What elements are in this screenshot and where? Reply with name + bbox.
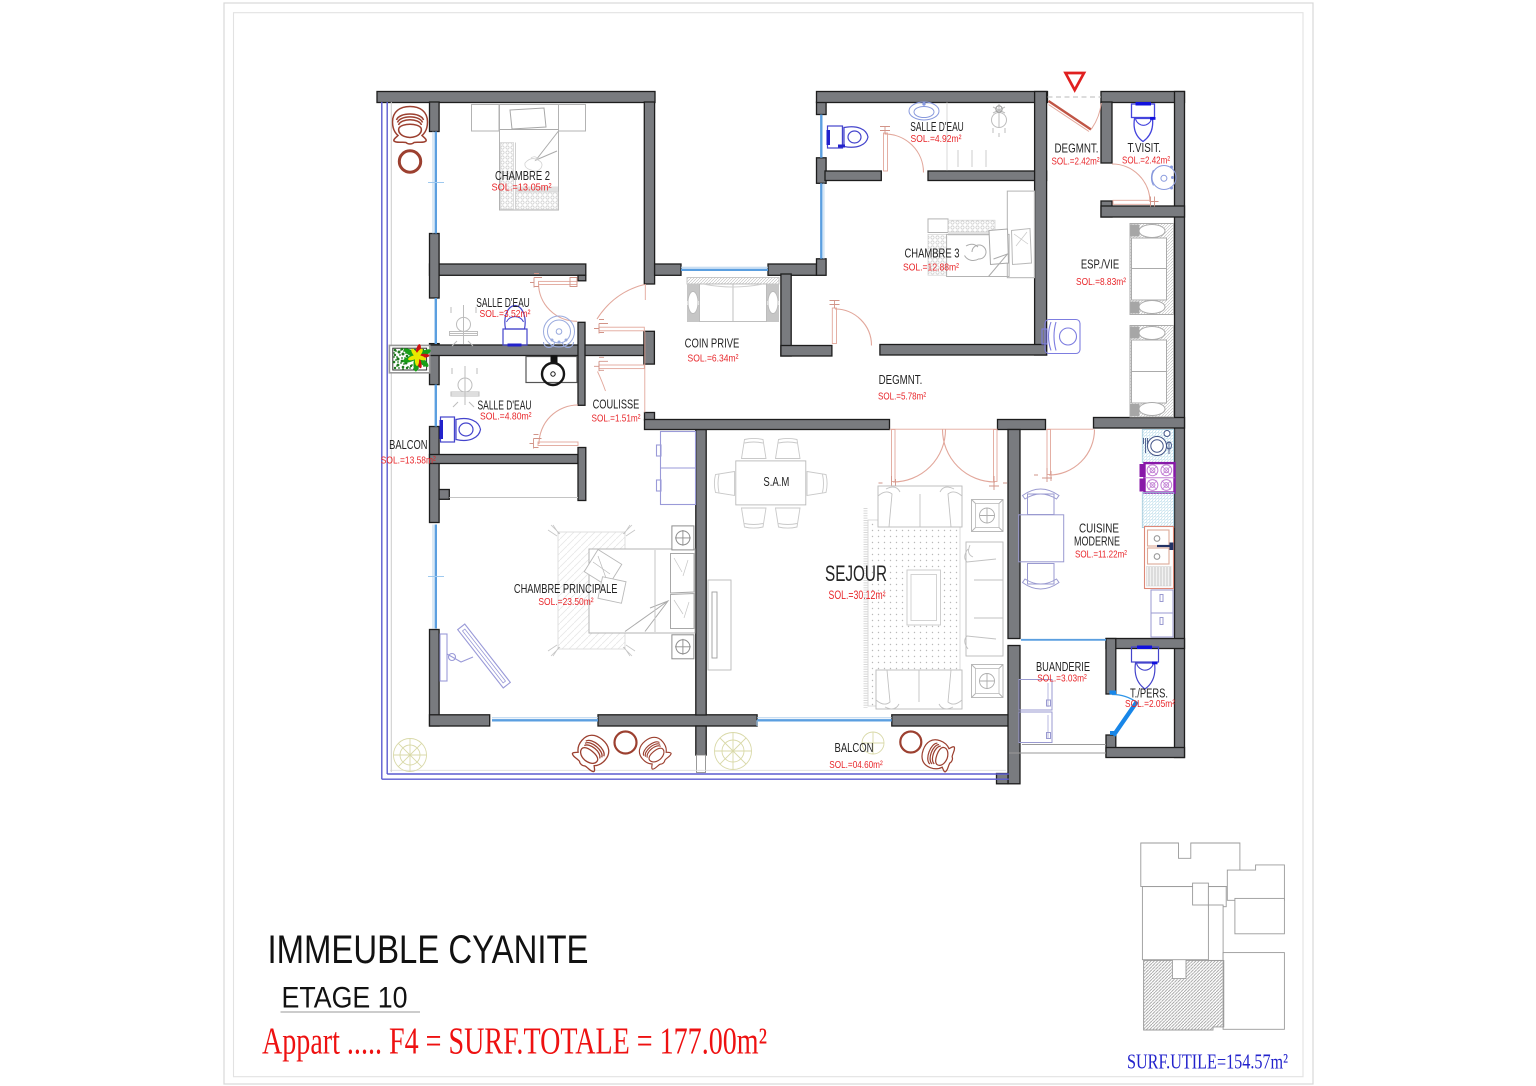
svg-text:CHAMBRE PRINCIPALE: CHAMBRE PRINCIPALE — [514, 581, 618, 596]
svg-text:SOL.=4.92m²: SOL.=4.92m² — [911, 133, 962, 145]
svg-text:SOL.=04.60m²: SOL.=04.60m² — [829, 759, 883, 771]
svg-text:SOL.=23.50m²: SOL.=23.50m² — [538, 596, 594, 608]
svg-text:ESP./VIE: ESP./VIE — [1081, 257, 1120, 272]
svg-text:SOL.=2.05m²: SOL.=2.05m² — [1125, 698, 1175, 710]
svg-text:SALLE D'EAU: SALLE D'EAU — [910, 119, 964, 134]
svg-text:Appart ..... F4 = SURF.TOTALE: Appart ..... F4 = SURF.TOTALE = 177.00m² — [262, 1021, 767, 1063]
svg-text:S.A.M: S.A.M — [763, 474, 789, 489]
svg-text:SURF.UTILE=154.57m²: SURF.UTILE=154.57m² — [1127, 1050, 1288, 1074]
svg-text:DEGMNT.: DEGMNT. — [1055, 141, 1099, 156]
svg-text:DEGMNT.: DEGMNT. — [879, 372, 923, 387]
svg-text:IMMEUBLE CYANITE: IMMEUBLE CYANITE — [268, 928, 589, 972]
svg-text:MODERNE: MODERNE — [1074, 534, 1120, 549]
svg-text:BALCON: BALCON — [835, 740, 874, 755]
svg-text:SOL.=2.42m²: SOL.=2.42m² — [1122, 155, 1170, 167]
svg-text:SOL.=30.12m²: SOL.=30.12m² — [829, 590, 886, 602]
svg-text:SOL.=13.58m²: SOL.=13.58m² — [381, 455, 436, 467]
svg-text:BALCON: BALCON — [389, 437, 427, 452]
svg-text:SOL.=4.80m²: SOL.=4.80m² — [480, 411, 532, 423]
svg-text:SOL.=5.78m²: SOL.=5.78m² — [878, 391, 926, 403]
svg-text:SOL.=8.83m²: SOL.=8.83m² — [1076, 276, 1126, 288]
svg-text:SOL.=3.03m²: SOL.=3.03m² — [1037, 673, 1087, 685]
svg-text:SOL.=11.22m²: SOL.=11.22m² — [1075, 549, 1127, 561]
svg-text:SOL.=3.52m²: SOL.=3.52m² — [480, 308, 531, 320]
svg-text:SOL.=6.34m²: SOL.=6.34m² — [688, 353, 739, 365]
svg-text:SOL.=12.88m²: SOL.=12.88m² — [903, 262, 959, 274]
svg-text:SEJOUR: SEJOUR — [825, 561, 887, 586]
svg-text:T.VISIT.: T.VISIT. — [1127, 140, 1161, 155]
svg-text:SOL.=2.42m²: SOL.=2.42m² — [1052, 156, 1100, 168]
svg-text:SOL.=13.05m²: SOL.=13.05m² — [492, 182, 552, 194]
svg-text:SOL.=1.51m²: SOL.=1.51m² — [592, 413, 641, 425]
svg-text:CHAMBRE 3: CHAMBRE 3 — [905, 246, 960, 261]
svg-text:COULISSE: COULISSE — [593, 397, 640, 412]
svg-text:ETAGE 10: ETAGE 10 — [282, 982, 408, 1015]
svg-text:COIN PRIVE: COIN PRIVE — [685, 336, 740, 351]
